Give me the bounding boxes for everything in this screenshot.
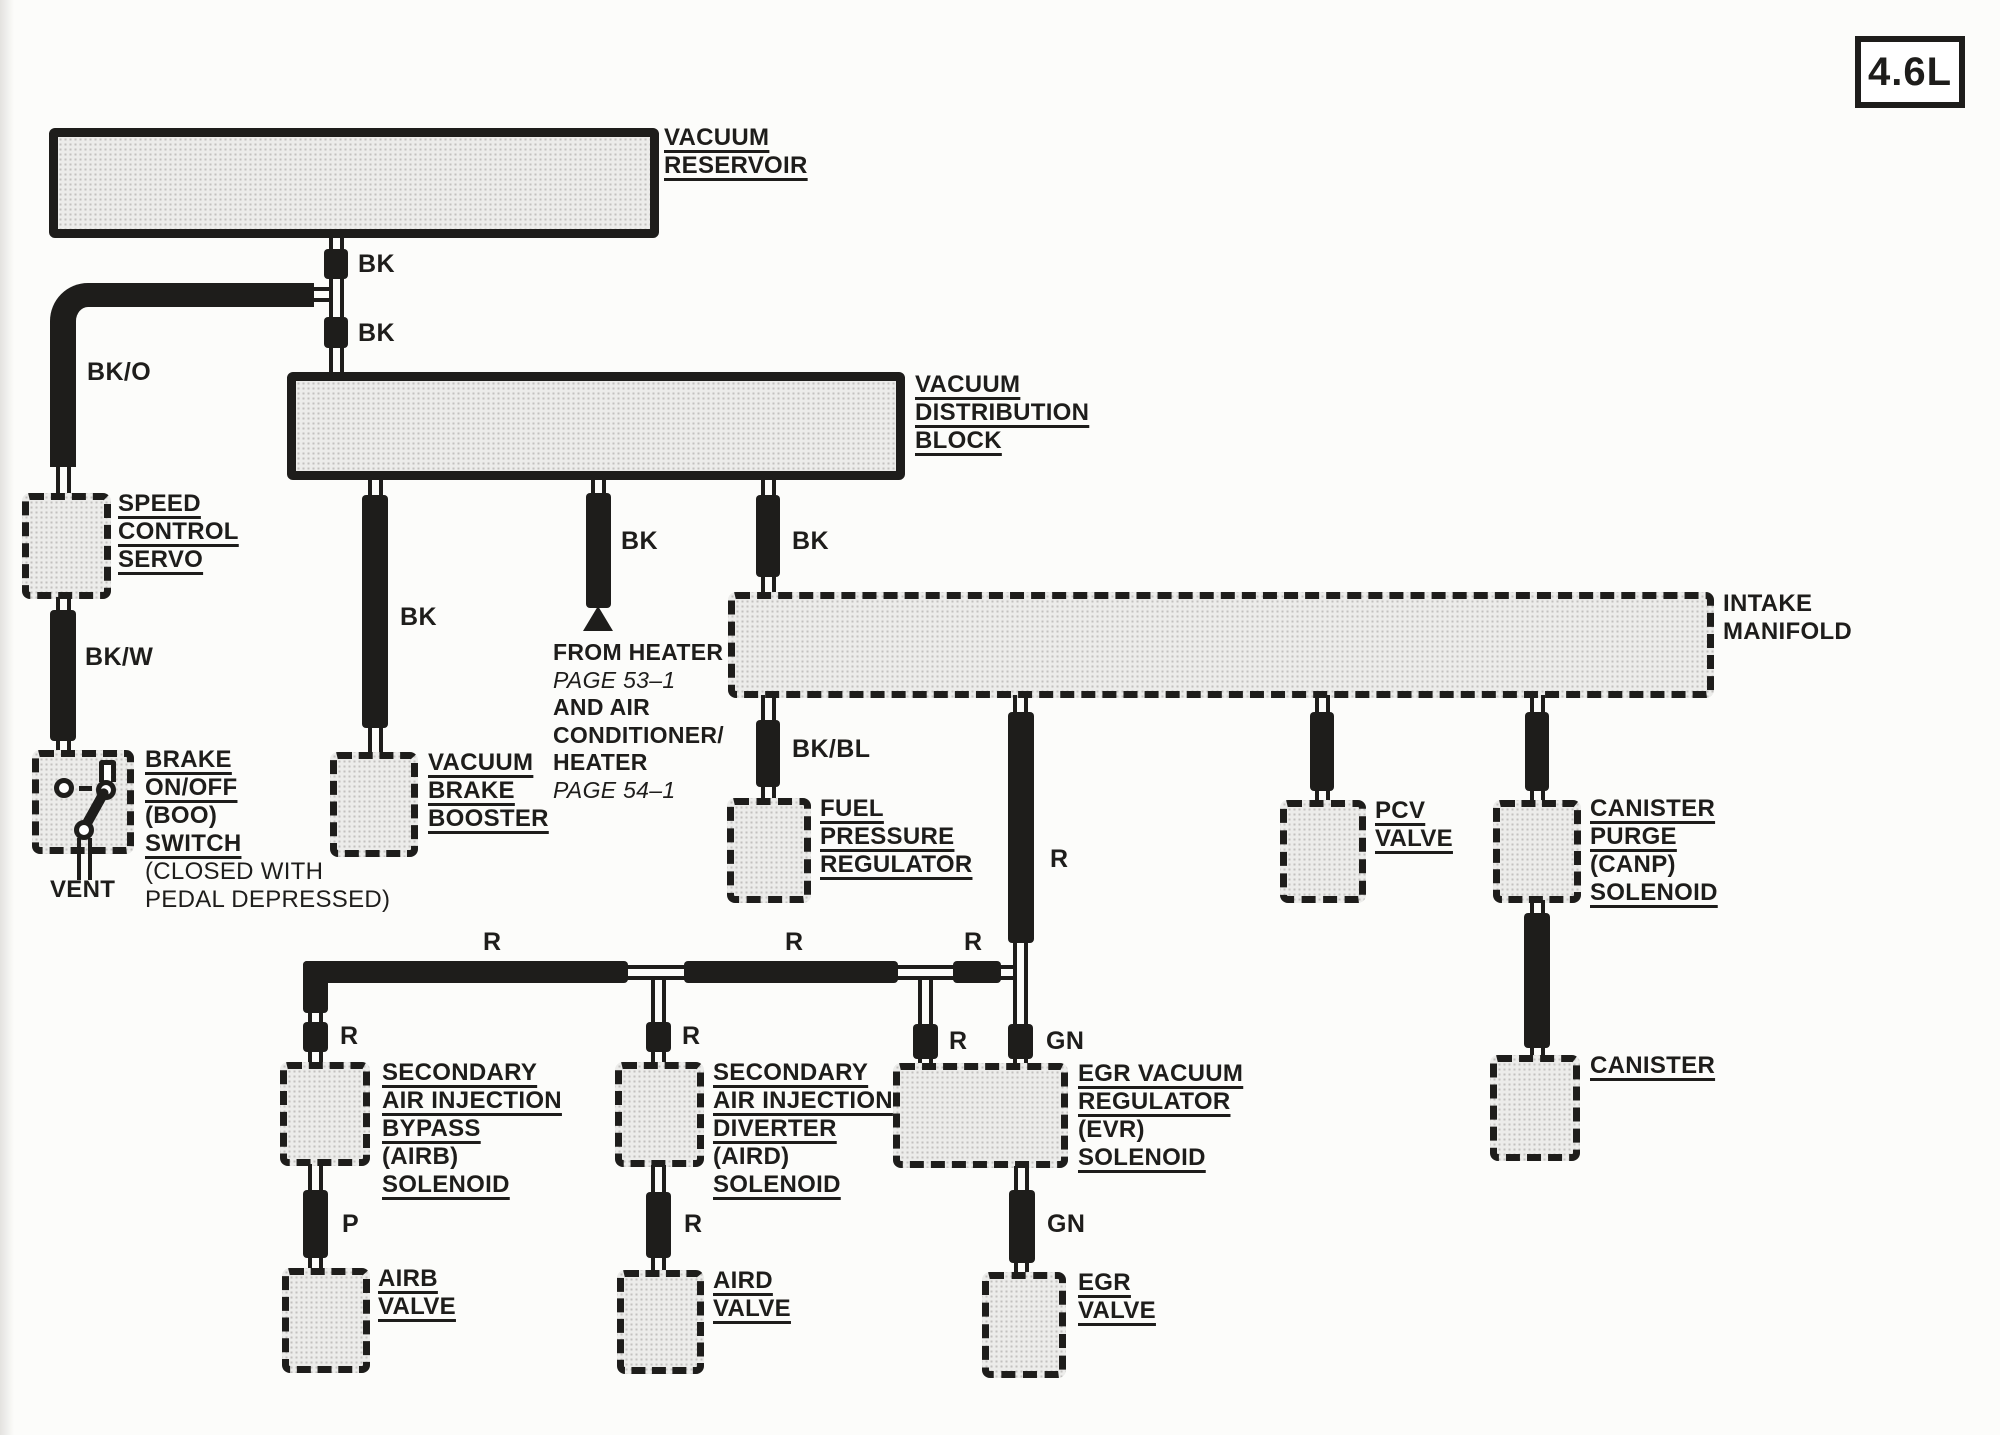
hose-aird-valve-stub1	[651, 1165, 666, 1194]
vacuum-brake-booster-box	[330, 752, 418, 857]
hose-into-block	[329, 346, 344, 374]
aird-valve-box	[617, 1270, 704, 1374]
hose-evr-supply-lower	[1013, 941, 1028, 1027]
connector-r-aird-valve	[646, 1192, 671, 1258]
airb-valve-label: AIRB VALVE	[378, 1265, 456, 1321]
code-r-airb-in: R	[340, 1022, 358, 1051]
aird-solenoid-box	[615, 1062, 704, 1167]
hose-manifold-stub-top	[761, 477, 776, 497]
airb-solenoid-box	[280, 1062, 370, 1166]
hose-r-run-gap3	[999, 965, 1015, 980]
connector-bk-manifold	[756, 495, 780, 577]
code-bkw: BK/W	[85, 643, 153, 672]
hose-servo-in	[56, 465, 71, 495]
evr-solenoid-box	[893, 1063, 1068, 1168]
canister-purge-solenoid-box	[1493, 800, 1581, 903]
connector-pcv	[1310, 712, 1334, 791]
pcv-valve-label: PCV VALVE	[1375, 797, 1453, 853]
canister-box	[1490, 1055, 1580, 1161]
connector-bk-lower	[324, 317, 348, 348]
code-bkbl: BK/BL	[792, 735, 870, 764]
pipe-r-evr-supply	[1008, 712, 1034, 943]
code-p-airb-valve: P	[342, 1210, 359, 1239]
code-r-run-mid: R	[785, 928, 803, 957]
code-bk-lower: BK	[358, 319, 395, 348]
switch-contact-dash	[79, 786, 92, 791]
from-heater-arrow-icon	[583, 606, 613, 631]
connector-r-aird	[646, 1022, 671, 1052]
code-gn-evr-in: GN	[1046, 1027, 1084, 1056]
vent-label: VENT	[50, 876, 115, 904]
canister-purge-solenoid-label: CANISTER PURGE (CANP) SOLENOID	[1590, 795, 1718, 907]
canister-label: CANISTER	[1590, 1052, 1715, 1080]
pipe-r-run-mid	[684, 961, 898, 983]
engine-size-badge: 4.6L	[1855, 36, 1965, 108]
vacuum-reservoir-label: VACUUM RESERVOIR	[664, 124, 808, 180]
code-bko: BK/O	[87, 358, 151, 387]
heater-note: FROM HEATER PAGE 53–1 AND AIR CONDITIONE…	[553, 639, 724, 804]
hose-r-run-gap2	[896, 965, 955, 980]
connector-r-evr	[913, 1024, 938, 1059]
code-r-aird-in: R	[682, 1022, 700, 1051]
code-r-aird-valve: R	[684, 1210, 702, 1239]
code-bk-booster: BK	[400, 603, 437, 632]
airb-solenoid-label: SECONDARY AIR INJECTION BYPASS (AIRB) SO…	[382, 1059, 562, 1199]
pipe-bkw	[50, 610, 76, 741]
pcv-valve-box	[1280, 800, 1366, 903]
code-r-evr-in: R	[949, 1027, 967, 1056]
hose-aird-drop	[651, 979, 666, 1025]
connector-bkbl	[756, 720, 780, 787]
fuel-pressure-regulator-box	[727, 798, 811, 903]
connector-p-airb-valve	[303, 1190, 328, 1258]
hose-between-bk	[329, 277, 344, 319]
pipe-r-run-left	[303, 961, 628, 983]
connector-r-airb	[303, 1022, 328, 1052]
hose-airb-valve-stub1	[308, 1164, 323, 1192]
vacuum-distribution-block-label: VACUUM DISTRIBUTION BLOCK	[915, 371, 1089, 455]
switch-hook	[99, 760, 116, 782]
code-r-evr-supply: R	[1050, 845, 1068, 874]
code-gn-egr-valve: GN	[1047, 1210, 1085, 1239]
speed-control-servo-label: SPEED CONTROL SERVO	[118, 490, 239, 574]
pipe-bk-heater	[586, 493, 611, 608]
code-r-run-right: R	[964, 928, 982, 957]
hose-booster-stub-top	[368, 477, 383, 497]
connector-gn-evr	[1008, 1024, 1033, 1059]
speed-control-servo-box	[22, 493, 111, 599]
vacuum-diagram-page: 4.6L VACUUM RESERVOIR BK BK BK/O SPEED C…	[0, 0, 2000, 1435]
connector-gn-egr-valve	[1009, 1190, 1035, 1263]
intake-manifold-box	[728, 592, 1714, 698]
vacuum-reservoir-box	[49, 128, 659, 238]
egr-valve-box	[982, 1272, 1066, 1378]
page-edge-shading	[0, 0, 14, 1435]
aird-valve-label: AIRD VALVE	[713, 1267, 791, 1323]
code-bk-upper: BK	[358, 250, 395, 279]
vacuum-distribution-block-box	[287, 372, 905, 480]
connector-bk-upper	[324, 249, 348, 279]
airb-valve-box	[282, 1268, 370, 1373]
switch-terminal-lower	[74, 820, 94, 840]
pipe-canister	[1524, 913, 1550, 1048]
switch-terminal-left	[54, 778, 74, 798]
hose-elbow-junction	[311, 287, 331, 302]
code-r-run-left: R	[483, 928, 501, 957]
hose-evr-r-drop	[918, 979, 933, 1027]
code-bk-manifold: BK	[792, 527, 829, 556]
connector-canp	[1525, 712, 1549, 791]
code-bk-heater: BK	[621, 527, 658, 556]
intake-manifold-label: INTAKE MANIFOLD	[1723, 590, 1852, 646]
hose-booster-stub-bottom	[368, 726, 383, 754]
hose-fpr-stub-top	[761, 695, 776, 723]
fuel-pressure-regulator-label: FUEL PRESSURE REGULATOR	[820, 795, 972, 879]
aird-solenoid-label: SECONDARY AIR INJECTION DIVERTER (AIRD) …	[713, 1059, 893, 1199]
pipe-r-run-right	[953, 961, 1001, 983]
evr-solenoid-label: EGR VACUUM REGULATOR (EVR) SOLENOID	[1078, 1060, 1243, 1172]
vacuum-brake-booster-label: VACUUM BRAKE BOOSTER	[428, 749, 549, 833]
egr-valve-label: EGR VALVE	[1078, 1269, 1156, 1325]
hose-vent	[77, 838, 92, 880]
pipe-bk-booster	[362, 495, 388, 728]
pipe-r-elbow-down	[303, 961, 328, 1013]
hose-r-run-gap1	[626, 965, 686, 980]
